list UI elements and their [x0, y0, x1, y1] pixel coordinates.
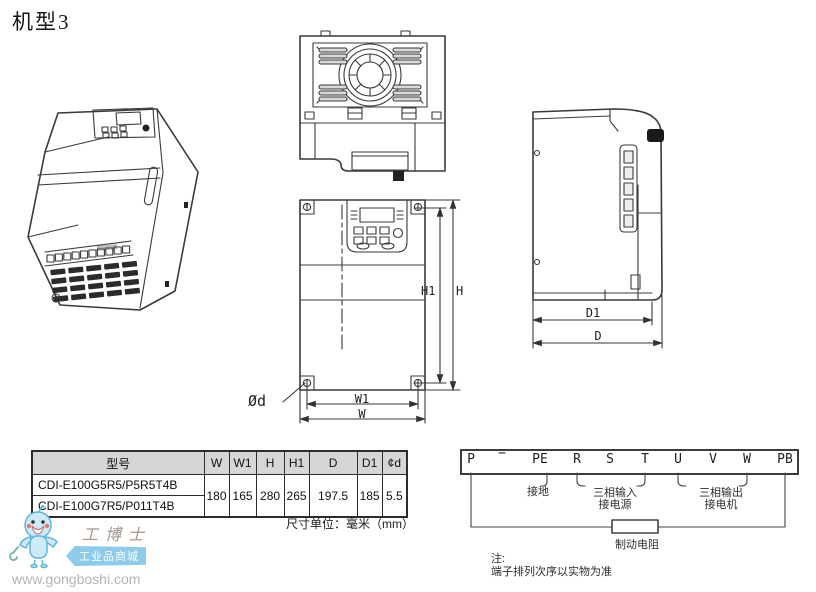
perspective-view — [18, 95, 218, 350]
terminal-diagram: P − PE R S T U V W PB 接地 三相输入 接电源 三相输出 接… — [455, 443, 811, 588]
terminal-strip-row — [45, 241, 133, 266]
col-header-d: D — [309, 451, 357, 475]
col-header-model: 型号 — [32, 451, 204, 475]
dim-label-hole: Ød — [248, 394, 266, 409]
col-header-d1: D1 — [357, 451, 382, 475]
dim-label-w1: W1 — [355, 393, 369, 405]
top-view — [283, 28, 463, 188]
value-w: 180 — [204, 475, 229, 518]
value-d1: 185 — [357, 475, 382, 518]
keypad — [347, 200, 407, 252]
input-label-1: 三相输入 — [593, 487, 637, 500]
note-text: 端子排列次序以实物为准 — [491, 566, 612, 579]
col-header-h: H — [256, 451, 284, 475]
side-vent-slots — [620, 145, 637, 232]
dim-label-w: W — [358, 408, 365, 420]
input-label-2: 接电源 — [599, 499, 632, 512]
table-header-row: 型号 W W1 H H1 D D1 ¢d — [32, 451, 407, 475]
front-view: H1 H W1 W Ød — [240, 195, 472, 429]
value-h: 280 — [256, 475, 284, 518]
col-header-w1: W1 — [229, 451, 256, 475]
watermark: 工博士 工业品商城 www.gongboshi.com — [2, 505, 187, 592]
output-label-2: 接电机 — [705, 499, 738, 512]
brake-resistor-label: 制动电阻 — [615, 539, 659, 552]
col-header-w: W — [204, 451, 229, 475]
side-view: D1 D — [520, 85, 705, 365]
brand-url: www.gongboshi.com — [12, 571, 140, 587]
top-view-drawing — [283, 28, 463, 188]
keypad — [93, 108, 155, 138]
dim-label-h: H — [456, 285, 463, 297]
dim-label-h1: H1 — [421, 285, 435, 297]
brake-resistor-box — [612, 520, 658, 533]
col-header-h1: H1 — [284, 451, 309, 475]
table-row: CDI-E100G5R5/P5R5T4B 180 165 280 265 197… — [32, 475, 407, 496]
dim-label-d: D — [594, 330, 601, 342]
brand-tagline-banner: 工业品商城 — [66, 546, 146, 566]
dim-label-d1: D1 — [586, 307, 600, 319]
page-title: 机型3 — [12, 6, 71, 36]
unit-note: 尺寸单位：毫米（mm） — [286, 515, 414, 532]
value-h1: 265 — [284, 475, 309, 518]
output-label-1: 三相输出 — [699, 487, 743, 500]
ground-label: 接地 — [527, 486, 549, 499]
perspective-view-drawing — [18, 95, 218, 350]
fan — [339, 44, 401, 106]
col-header-hole: ¢d — [382, 451, 407, 475]
vent-grille — [50, 261, 140, 302]
side-view-drawing — [520, 85, 705, 365]
top-clip — [647, 129, 664, 142]
model-cell: CDI-E100G5R5/P5R5T4B — [32, 475, 204, 496]
value-hole: 5.5 — [382, 475, 407, 518]
value-w1: 165 — [229, 475, 256, 518]
value-d: 197.5 — [309, 475, 357, 518]
brand-name: 工博士 — [82, 521, 151, 545]
note-label: 注: — [491, 553, 505, 566]
